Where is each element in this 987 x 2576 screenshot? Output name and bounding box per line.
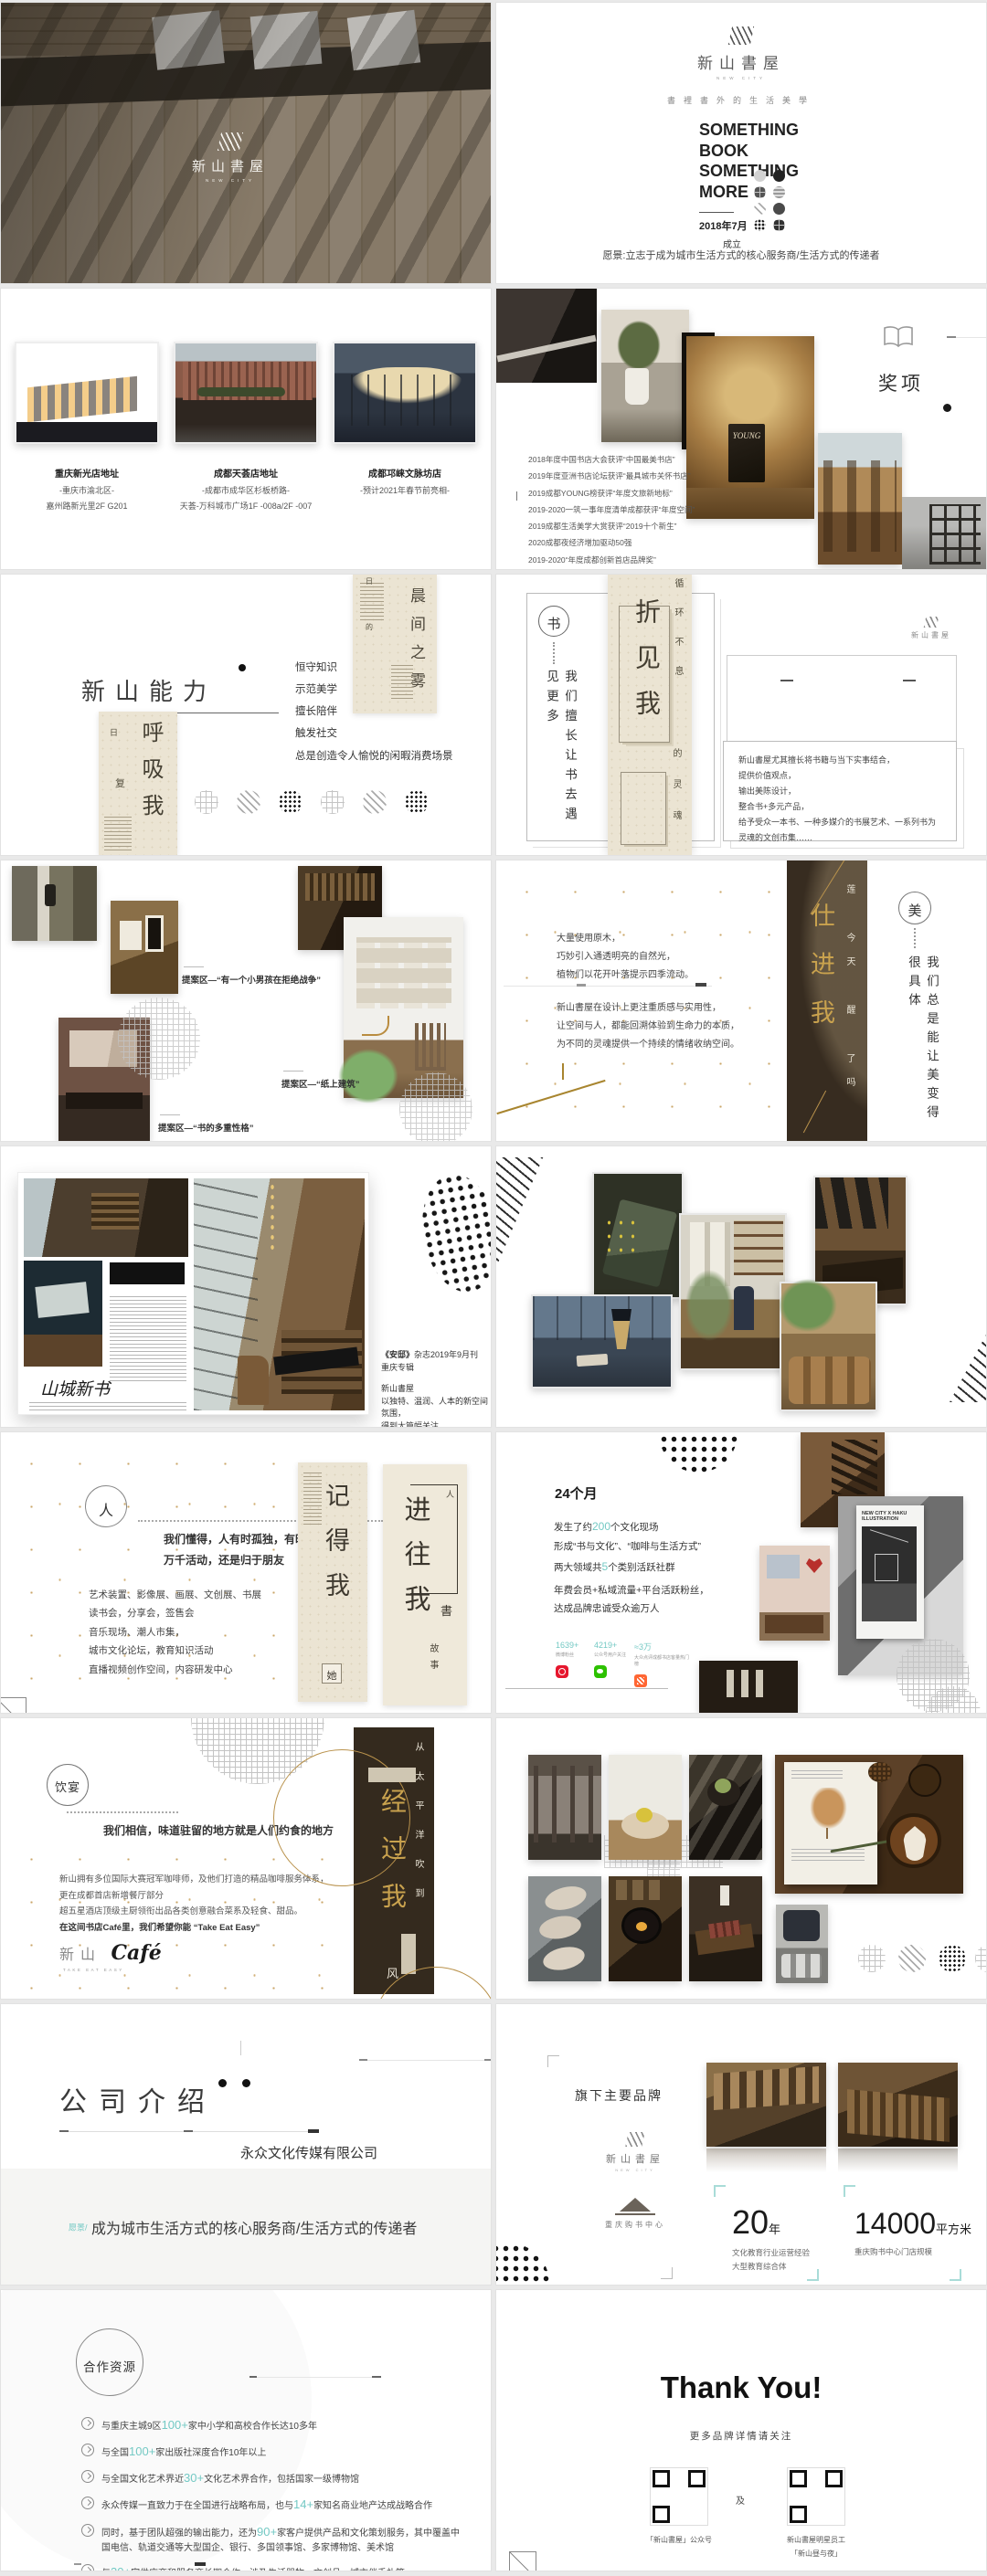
photo-skillet [609, 1876, 682, 1981]
qr-finder [790, 2470, 807, 2487]
poster-tag: 人 [446, 1488, 454, 1500]
card-line: 输出美陈设计， [738, 784, 941, 799]
card-line: 给予受众一本书、一种多媒介的书展艺术、一系列书为灵魂的文创市集…… [738, 815, 941, 846]
photo-toasts [528, 1876, 601, 1981]
beige-block [368, 1768, 416, 1782]
award-item: 2018年度中国书店大会获评“中国最美书店” [528, 451, 830, 468]
pattern-circle [858, 1945, 886, 1972]
brand-logo-bookcity: 重庆购书中心 [580, 2198, 690, 2230]
slide-cover: 新山書屋 NEW CITY [0, 2, 492, 284]
store-line: -重庆市渝北区- [15, 484, 159, 496]
poster-unfold-me: 折见我 循环不息 的灵魂 [608, 575, 692, 856]
title-rule [699, 212, 734, 213]
shelf-columns [823, 460, 897, 552]
divider-dash [695, 983, 706, 987]
greenery [197, 387, 285, 396]
list-item: 音乐现场、潮人市集， [89, 1623, 261, 1642]
hanging-bulbs [269, 1182, 278, 1255]
slide-people: 人 我们懂得，人有时孤独，有时热闹 万千活动，还是归于朋友 艺术装置、影像展、画… [0, 1431, 492, 1714]
weibo-icon [556, 1665, 568, 1678]
brand-name: 重庆购书中心 [580, 2220, 690, 2230]
yellow-flowers [603, 1216, 640, 1252]
ability-heading: 新山能力 [81, 673, 217, 707]
ladle [908, 1764, 941, 1797]
roof-base-line [615, 2213, 655, 2215]
ability-item: 总是创造令人愉悦的闲暇消费场景 [295, 745, 453, 767]
social-stats: 1639+ 微博粉丝 4219+ 公众号用户关注 ≈3万 大众点评成都书店客量热… [556, 1641, 689, 1687]
caption-rule [283, 1071, 303, 1072]
photo-icecream [689, 1755, 762, 1860]
dining-paragraph: 新山拥有多位国际大赛冠军咖啡师，及他们打造的精品咖啡服务体系， 更在成都首店新增… [59, 1872, 343, 1936]
text-line: 植物们以花开叶落提示四季流动。 [557, 966, 694, 985]
poster-side-text: 的灵魂 [669, 748, 683, 849]
accent-dot [242, 2079, 250, 2087]
photo-dark-table [699, 1661, 798, 1713]
brand-name: 新山書屋 [180, 156, 281, 175]
text-line: 更在成都首店新增餐厅部分 [59, 1888, 343, 1905]
accent-dot [239, 664, 246, 671]
brand-photo [838, 2063, 958, 2147]
item-num: 14+ [293, 2497, 313, 2511]
plate-oval [543, 1883, 589, 1914]
award-item: 2020成都夜经济增加驱动50强 [528, 534, 830, 551]
brand-sub: NEW CITY [180, 178, 281, 183]
slide-24months: 24个月 发生了约200个文化现场 形成“书与文化”、“咖啡与生活方式” 两大领… [495, 1431, 987, 1714]
brand-sub: NEW CITY [496, 76, 986, 80]
text-line: 超五星酒店顶级主厨领衔出品各类创意融合菜系及轻食、甜品。 [59, 1904, 343, 1920]
brand-name: 新山書屋 [496, 50, 986, 73]
header-dash [359, 2059, 367, 2061]
table-lamp [611, 1309, 631, 1349]
chevron-circle-icon [81, 2417, 94, 2430]
caption-rule [184, 966, 204, 967]
jars [616, 1880, 663, 1900]
stat-column: 1639+ 微博粉丝 [556, 1641, 587, 1687]
store-photo-chongqing [15, 342, 159, 444]
awards-list: 2018年度中国书店大会获评“中国最美书店” 2019年度亚洲书店论坛获评“最具… [528, 451, 830, 568]
shadow-stripes [689, 1755, 762, 1860]
partners-list: 与重庆主城9区100+家中小学和高校合作长达10多年 与全国100+家出版社深度… [81, 2416, 469, 2571]
slide-proposals: 提案区—“有一个小男孩在拒绝战争” 提案区—“书的多重性格” 提案区—“纸上建筑… [0, 860, 492, 1142]
proposal-caption: 提案区—“书的多重性格” [158, 1121, 254, 1134]
header-line [367, 2060, 484, 2061]
footer-dash [195, 2562, 206, 2566]
store-caption: 成都邛崃文脉坊店 -预计2021年春节前亮相- [333, 466, 477, 496]
white-tower [720, 1885, 729, 1906]
text-line: 两大领域共5个类别活跃社群 [554, 1557, 701, 1578]
poster-gold-chars: 仕进我 [803, 903, 839, 1113]
trophy-word: YOUNG [728, 431, 765, 440]
list-item: 艺术装置、影像展、画展、文创展、书展 [89, 1586, 261, 1604]
gold-tick [562, 1063, 564, 1080]
grey-corner-bracket [661, 2267, 673, 2279]
brand-logo: 新山書屋 NEW CITY [180, 132, 281, 183]
photo-cake [609, 1755, 682, 1860]
pattern-circle [321, 790, 345, 814]
leaf-blur [336, 1047, 400, 1105]
text-line: 为不同的灵魂提供一个持续的情绪收纳空间。 [557, 1036, 739, 1054]
ability-list: 恒守知识 示范美学 擅长陪伴 触发社交 总是创造令人愉悦的闲暇消费场景 [295, 657, 453, 767]
header-dash [947, 336, 956, 338]
stat-number: 20 [732, 2203, 769, 2241]
press-note: 《安邸》杂志2019年9月刊 重庆专辑 新山書屋 以独特、温润、人本的新空间氛围… [381, 1349, 489, 1428]
item-num: 90+ [257, 2525, 277, 2539]
brand-photo [706, 2063, 826, 2147]
accent-dot [943, 404, 951, 412]
photo-green-chair [592, 1172, 684, 1299]
poster-text: ILLUSTRATION [862, 1516, 918, 1522]
award-item: 2019年度亚洲书店论坛获评“最具城市关怀书店” [528, 468, 830, 484]
store-name: 成都天荟店地址 [174, 466, 318, 480]
brand-mark-icon [728, 26, 754, 45]
box-dash [780, 680, 793, 681]
partner-item: 与重庆主城9区100+家中小学和高校合作长达10多年 [81, 2416, 469, 2434]
sign-board [35, 1282, 89, 1318]
pattern-dot [773, 203, 785, 215]
poster-remember-me: 记得我 她 [298, 1462, 367, 1702]
halftone-dots [413, 1168, 492, 1298]
poster-tag: 她 [323, 1668, 341, 1683]
footer-dash [74, 2563, 81, 2565]
photo-frames [111, 901, 178, 994]
bookshelf [91, 1193, 139, 1230]
qr-finder [825, 2470, 843, 2487]
poster-side-char: 复 [115, 776, 125, 790]
text-part: 个文化现场 [610, 1522, 659, 1533]
poster-white-text: 从太平洋吹到 [411, 1742, 425, 1961]
cafe-logo-en: Café [111, 1941, 161, 1965]
slide-stores: 重庆新光店地址 -重庆市渝北区- 嘉州路新光里2F G201 成都天荟店地址 -… [0, 288, 492, 570]
item-pre: 同时，基于团队超强的输出能力，还为 [101, 2528, 257, 2539]
book-icon [882, 325, 915, 349]
slide-thanks: Thank You! 更多品牌详情请关注 及 「新山書屋」公众号 新山書屋明星员… [495, 2289, 987, 2571]
books-vertical-text: 我们擅长让书去遇见更多 [542, 670, 578, 845]
brand-tagline: 書裡書外的生活美學 [496, 94, 986, 106]
brand-mark-icon [625, 2132, 644, 2147]
glass-frames [351, 375, 462, 426]
badge-text: 合作资源 [77, 2357, 143, 2375]
building-lights [27, 376, 137, 423]
partner-item: 与全国100+家出版社深度合作10年以上 [81, 2443, 469, 2461]
white-vase [625, 368, 649, 405]
cafe-logo-cn: 新山 [59, 1948, 101, 1963]
ability-item: 示范美学 [295, 679, 453, 701]
text-line: 形成“书与文化”、“咖啡与生活方式” [554, 1537, 701, 1556]
header-dash [484, 2059, 491, 2061]
poster-illustration [862, 1526, 917, 1621]
badge-beauty: 美 [898, 892, 931, 924]
badge-char: 美 [899, 901, 930, 920]
book-spines [305, 873, 375, 901]
card-line: 提供价值观点， [738, 768, 941, 784]
item-post: 家出版社深度合作10年以上 [155, 2448, 266, 2458]
matcha-scoop [715, 1779, 731, 1793]
stat-label: 公众号用户关注 [594, 1652, 627, 1658]
photo-bookshelf-dark [496, 289, 597, 383]
note-line: 得到大篇幅关注 [381, 1420, 489, 1429]
pattern-dot [754, 186, 766, 198]
badge-char: 人 [86, 1498, 126, 1520]
egg-yolk [636, 1922, 647, 1931]
store-photo-tianhui [174, 342, 318, 444]
pattern-circle [363, 790, 387, 814]
chair [415, 1023, 446, 1071]
poster-tag: 故事 [426, 1643, 440, 1680]
qr-code-official [650, 2467, 708, 2526]
pattern-dot [754, 170, 766, 182]
badge-people: 人 [85, 1485, 127, 1527]
dot-grid [754, 170, 787, 230]
poster-lines [104, 814, 132, 850]
poster-title: 呼吸我 [134, 721, 166, 853]
months-paragraph-1: 发生了约200个文化现场 形成“书与文化”、“咖啡与生活方式” 两大领域共5个类… [554, 1516, 701, 1578]
pattern-circle-large [399, 1072, 472, 1142]
dotted-divider [67, 1811, 178, 1813]
company-heading: 公司介绍 [59, 2079, 217, 2119]
qr-finder [653, 2506, 670, 2523]
chevron-circle-icon [81, 2470, 94, 2483]
photo-reflection [706, 2148, 826, 2172]
book-title-lines [791, 1769, 843, 1779]
beauty-vertical-text: 我们总是能让美变得很具体 [904, 955, 940, 1135]
pattern-dot [773, 219, 785, 231]
thanks-title: Thank You! [496, 2370, 986, 2405]
stat-column: 4219+ 公众号用户关注 [594, 1641, 627, 1687]
brand-mark-icon [218, 132, 243, 151]
badge-partners: 合作资源 [76, 2328, 143, 2396]
mountain-roof-icon [620, 2198, 651, 2212]
people-list: 艺术装置、影像展、画展、文创展、书展 读书会，分享会，签售会 音乐现场、潮人市集… [89, 1586, 261, 1679]
open-books-wall [356, 937, 451, 1008]
chevron-circle-icon [81, 2497, 94, 2509]
slide-title: 新山書屋 NEW CITY 書裡書外的生活美學 SOMETHING BOOK S… [495, 2, 987, 284]
leaves [776, 1276, 840, 1335]
brand-mark-icon [924, 617, 939, 628]
note-line: 新山書屋 [381, 1383, 489, 1396]
shelves [714, 2066, 819, 2110]
brands-title: 旗下主要品牌 [575, 2086, 663, 2105]
award-item: 2019-2020一筑一事年度清单成都获评“年度空间” [528, 501, 830, 518]
underline-dash [184, 2130, 193, 2132]
card-line: 整合书+多元产品， [738, 799, 941, 815]
poster-card: NEW CITY X HAKU ILLUSTRATION [856, 1505, 924, 1639]
slide-beauty: 大量使用原木， 巧妙引入通透明亮的自然光， 植物们以花开叶落提示四季流动。 新山… [495, 860, 987, 1142]
counter [66, 1093, 143, 1109]
awards-title: 奖项 [878, 369, 924, 396]
cafe-logo: 新山 Café TAKE EAT EASY [59, 1941, 162, 1972]
plate-oval [541, 1943, 587, 1973]
text-part: 个类别活跃社群 [608, 1562, 675, 1573]
brand-sub: NEW CITY [580, 2168, 690, 2172]
stat-unit: 平方米 [936, 2222, 971, 2236]
badge-dining: 饮宴 [47, 1764, 89, 1806]
barista-arm [783, 1910, 820, 1941]
magazine-title: 山城新书 [40, 1376, 110, 1400]
bird-illustration [808, 1788, 854, 1837]
open-book [577, 1354, 609, 1367]
plate-oval [537, 1913, 582, 1942]
photo-aisle [818, 433, 902, 565]
poster-pacific-wind: 风 从太平洋吹到 经过我 [354, 1727, 434, 1994]
book-stacks [847, 2089, 950, 2142]
slide-partners: 合作资源 与重庆主城9区100+家中小学和高校合作长达10多年 与全国100+家… [0, 2289, 492, 2571]
store-line: 天荟-万科城市广场1F -008a/2F -007 [174, 500, 318, 512]
badge-text: 饮宴 [48, 1778, 88, 1795]
note-text: 杂志2019年9月刊 [414, 1350, 478, 1359]
divider-line [504, 986, 712, 987]
slide-ability: 日 的 晨间之雾 新山能力 恒守知识 示范美学 擅长陪伴 触发社交 总是创造令人… [0, 574, 492, 856]
text-line: 发生了约200个文化现场 [554, 1516, 701, 1537]
stat-years: 20年 文化教育行业运营经验 大型教育综合体 [732, 2203, 810, 2272]
barista [734, 1286, 754, 1330]
partner-item: 与30+家供应商和服务商长期合作，涉及生活器物、文创品、城市伴手礼等 [81, 2563, 469, 2571]
proposal-caption: 提案区—“有一个小男孩在拒绝战争” [182, 973, 321, 986]
photo-interior-grey [902, 497, 986, 569]
halftone-arc [659, 1431, 738, 1473]
qr-finder [790, 2506, 807, 2523]
bottom-rule [505, 1688, 668, 1689]
store-line: -预计2021年春节前亮相- [333, 484, 477, 496]
street [16, 422, 157, 442]
text-line: 在这间书店Café里，我们希望你能 “Take Eat Easy” [59, 1920, 343, 1937]
store-photo-qionglai [333, 342, 477, 444]
company-name: 永众文化传媒有限公司 [240, 2143, 377, 2162]
text-line: 大量使用原木， [557, 930, 694, 948]
store-name: 重庆新光店地址 [15, 466, 159, 480]
chevron-circle-icon [81, 2524, 94, 2537]
photo-reflection [838, 2148, 958, 2172]
months-heading: 24个月 [555, 1483, 598, 1503]
stat-number: 14000 [854, 2207, 936, 2240]
wechat-icon [594, 1665, 607, 1678]
qr-finder [688, 2470, 706, 2487]
text-line: 新山書屋在设计上更注重质感与实用性， [557, 999, 739, 1018]
store-caption: 重庆新光店地址 -重庆市渝北区- 嘉州路新光里2F G201 [15, 466, 159, 512]
console-table [765, 1615, 823, 1633]
thanks-subtitle: 更多品牌详情请关注 [496, 2429, 986, 2443]
list-item: 城市文化论坛，教育知识活动 [89, 1642, 261, 1660]
item-num: 100+ [129, 2444, 155, 2458]
months-paragraph-2: 年费会员+私域流量+平台活跃粉丝， 达成品牌忠诚受众逾万人 [554, 1581, 709, 1619]
photo-steak [689, 1876, 762, 1981]
store-name: 成都邛崃文脉坊店 [333, 466, 477, 480]
award-item: 2019-2020“年度成都创新首店品牌奖” [528, 552, 830, 568]
poster-walk-into-me: 人 进往我 書 故事 [383, 1464, 467, 1705]
tick-mark [516, 491, 517, 501]
pattern-circle [279, 790, 302, 814]
photo-pourover [776, 1905, 828, 1983]
stat-number: 200 [592, 1520, 610, 1533]
window-frames [534, 1766, 596, 1842]
window-frames [533, 1296, 674, 1340]
stat-label: 微博粉丝 [556, 1652, 587, 1658]
brand-name: 新山書屋 [580, 2151, 690, 2166]
item-pre: 与重庆主城9区 [101, 2422, 162, 2432]
pattern-circle [939, 1945, 966, 1972]
ability-item: 触发社交 [295, 723, 453, 744]
stat-value: ≈3万 [634, 1641, 689, 1652]
grey-corner-bracket [547, 2055, 559, 2067]
stat-desc: 文化教育行业运营经验 [732, 2247, 810, 2258]
beige-block [401, 1934, 416, 1974]
dianping-icon [634, 1674, 647, 1687]
inset-photo [24, 1261, 102, 1367]
award-item: 2019成都生活美学大赏获评“2019十个新生” [528, 518, 830, 534]
text-line: 年费会员+私域流量+平台活跃粉丝， [554, 1581, 709, 1599]
desk-lamp [362, 1016, 389, 1036]
screen [767, 1555, 800, 1578]
store-line: 嘉州路新光里2F G201 [15, 500, 159, 512]
black-print [145, 915, 164, 952]
deck-grid: 新山書屋 NEW CITY 新山書屋 NEW CITY 書裡書外的生活美學 SO… [0, 0, 987, 2571]
chevron-circle-icon [81, 2444, 94, 2456]
white-print [120, 921, 142, 950]
stat-area: 14000平方米 重庆购书中心门店规模 [854, 2207, 971, 2257]
proposal-caption: 提案区—“纸上建筑” [281, 1077, 360, 1090]
store-line: -成都市成华区杉板桥路- [174, 484, 318, 496]
partner-item: 永众传媒一直致力于在全国进行战略布局，也与14+家知名商业地产达成战略合作 [81, 2496, 469, 2514]
tick-mark [240, 2041, 241, 2055]
caption-box [110, 1262, 185, 1284]
poster-small-char: 莲 今天 醒 了吗 [843, 884, 856, 1113]
slide-books: 书 我们擅长让书去遇见更多 折见我 循环不息 的灵魂 新山書屋 新山書屋尤其擅长… [495, 574, 987, 856]
list-item: 直播视频创作空间，内容研发中心 [89, 1661, 261, 1679]
stat-value: 4219+ [594, 1641, 627, 1650]
teal-corner-bracket [950, 2269, 961, 2281]
pattern-circle [195, 790, 218, 814]
header-dash [249, 2376, 257, 2378]
qr-separator: 及 [736, 2493, 745, 2507]
qr-code-staff [787, 2467, 845, 2526]
beauty-paragraph-2: 新山書屋在设计上更注重质感与实用性， 让空间与人，都能回溯体验到生命力的本质， … [557, 999, 739, 1054]
window-grid [929, 504, 981, 565]
cafe-logo-sub: TAKE EAT EASY [63, 1968, 162, 1972]
poster-breathe: 日 复 呼吸我 [99, 712, 177, 855]
caption-rule [160, 1114, 180, 1115]
heart-art [806, 1558, 822, 1573]
underline-dash [308, 2129, 319, 2133]
poster-side-char: 日 [110, 726, 118, 738]
note-line: 以独特、温润、人本的新空间氛围， [381, 1396, 489, 1420]
pinecone [868, 1762, 892, 1782]
photo-plant [601, 310, 689, 442]
right-page-photo [194, 1178, 365, 1410]
slide-awards: ASIAN BOOK STORE FORUM YOUNG 奖项 2018年度中国… [495, 288, 987, 570]
pattern-circle-large [118, 998, 200, 1080]
poster-waterlily: 莲 今天 醒 了吗 仕进我 [787, 860, 867, 1142]
dark-fins [815, 1177, 888, 1229]
header-dash [372, 2376, 381, 2378]
underline-dash [59, 2130, 69, 2132]
photo-storefront [528, 1755, 601, 1860]
item-post: 文化艺术界合作，包括国家一级博物馆 [204, 2475, 359, 2485]
corner-glyph [509, 2551, 536, 2571]
card-line: 新山書屋尤其擅长将书籍与当下实事结合， [738, 753, 941, 768]
store-caption: 成都天荟店地址 -成都市成华区杉板桥路- 天荟-万科城市广场1F -008a/2… [174, 466, 318, 512]
cake [636, 1808, 653, 1822]
photo-terrace [780, 1282, 877, 1411]
badge-char: 书 [539, 614, 568, 633]
intro-text-block [29, 1399, 186, 1410]
hatch-corner [496, 1157, 546, 1271]
qr-finder [653, 2470, 670, 2487]
brand-logo-xinshan: 新山書屋 NEW CITY [580, 2132, 690, 2172]
pattern-dot [773, 186, 785, 198]
pattern-circle [405, 790, 429, 814]
wall-shelf [734, 1220, 783, 1275]
rattan-chairs [789, 1357, 871, 1404]
qr-label: 「新山書屋」公众号 [624, 2535, 734, 2545]
